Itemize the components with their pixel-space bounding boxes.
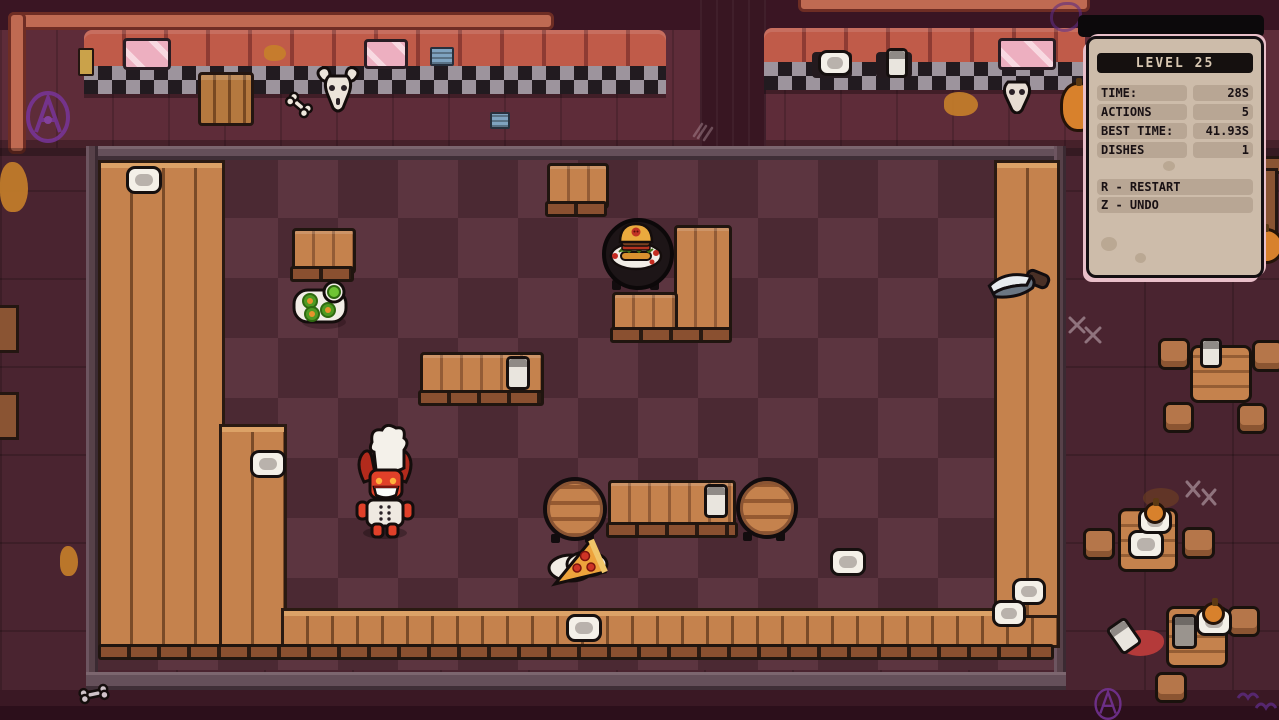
vent-icon bbox=[490, 112, 510, 129]
stat-value-actions: 5 bbox=[1193, 104, 1253, 120]
stat-value-time: 28S bbox=[1193, 85, 1253, 101]
stool bbox=[1158, 338, 1190, 370]
window-icon bbox=[123, 38, 171, 70]
wood-platform-right bbox=[994, 160, 1060, 618]
hud-top-bar bbox=[1078, 15, 1264, 37]
stool bbox=[1083, 528, 1115, 560]
bench bbox=[674, 225, 732, 335]
checker-strip-left bbox=[84, 66, 666, 94]
panel-stain bbox=[1163, 161, 1175, 171]
stool bbox=[1155, 672, 1187, 703]
window-icon bbox=[364, 39, 408, 69]
control-restart: R - RESTART bbox=[1097, 179, 1253, 195]
green-dish-plate-icon bbox=[290, 278, 354, 332]
control-undo: Z - UNDO bbox=[1097, 197, 1253, 213]
plate-icon bbox=[818, 50, 852, 76]
level-header: LEVEL 25 bbox=[1097, 53, 1253, 73]
bull-skull-icon bbox=[316, 66, 360, 114]
skull-icon bbox=[1000, 78, 1034, 114]
stool bbox=[1228, 606, 1260, 637]
stat-label-dishes: DISHES bbox=[1097, 142, 1187, 158]
bench-base bbox=[606, 522, 738, 538]
stat-row-dishes: DISHES 1 bbox=[1097, 142, 1253, 158]
plate-icon bbox=[830, 548, 866, 576]
plate-icon bbox=[250, 450, 286, 478]
stool bbox=[1237, 403, 1267, 434]
game-viewport[interactable]: LEVEL 25 TIME: 28S ACTIONS 5 BEST TIME: … bbox=[0, 0, 1279, 720]
stain bbox=[0, 162, 28, 212]
stool bbox=[1252, 340, 1279, 372]
panel-stain bbox=[1135, 253, 1146, 263]
stool bbox=[1182, 527, 1215, 559]
panel-stain bbox=[1101, 237, 1117, 251]
stat-label-time: TIME: bbox=[1097, 85, 1187, 101]
vent-icon bbox=[430, 47, 454, 66]
bench-base bbox=[418, 390, 544, 406]
plate-icon bbox=[126, 166, 162, 194]
plate-icon bbox=[1128, 530, 1164, 559]
outside-bench-post bbox=[0, 392, 19, 440]
pumpkin-icon bbox=[1144, 502, 1166, 524]
bone-icon bbox=[284, 90, 314, 120]
burger-on-plate-icon bbox=[604, 218, 668, 282]
stat-value-best-time: 41.93S bbox=[1193, 123, 1253, 139]
pipe-top-right bbox=[798, 0, 1090, 12]
room-border-top bbox=[86, 146, 1066, 160]
stat-value-dishes: 1 bbox=[1193, 142, 1253, 158]
wood-bench-row-bottom bbox=[281, 608, 1060, 648]
bench-base bbox=[545, 201, 607, 217]
pipe-top-left-horizontal bbox=[8, 12, 554, 30]
cup-icon bbox=[1172, 614, 1197, 649]
knife-icon bbox=[986, 258, 1052, 308]
bench-base-row bbox=[98, 644, 1054, 660]
barrel-table bbox=[736, 477, 798, 539]
stat-label-actions: ACTIONS bbox=[1097, 104, 1187, 120]
cup-icon bbox=[1200, 338, 1222, 368]
plate-icon bbox=[992, 600, 1026, 627]
control-restart-label: R - RESTART bbox=[1097, 179, 1253, 195]
stool bbox=[1163, 402, 1194, 433]
control-undo-label: Z - UNDO bbox=[1097, 197, 1253, 213]
player-devil-chef bbox=[350, 424, 420, 540]
cup-icon bbox=[886, 48, 908, 78]
scratch-marks bbox=[1066, 310, 1106, 348]
outside-bench-post bbox=[0, 305, 19, 353]
stain bbox=[944, 92, 978, 116]
room-border-left bbox=[86, 146, 98, 686]
window-icon bbox=[998, 38, 1056, 70]
price-tag bbox=[78, 48, 94, 76]
stat-label-best-time: BEST TIME: bbox=[1097, 123, 1187, 139]
stat-row-actions: ACTIONS 5 bbox=[1097, 104, 1253, 120]
bat-marks bbox=[1236, 688, 1278, 714]
scratch-marks bbox=[1183, 476, 1223, 510]
plate-icon bbox=[566, 614, 602, 642]
hud-panel: LEVEL 25 TIME: 28S ACTIONS 5 BEST TIME: … bbox=[1086, 36, 1264, 278]
shaker-icon bbox=[506, 356, 530, 390]
barrel-table bbox=[543, 477, 607, 541]
bench-base bbox=[610, 327, 732, 343]
graffiti-anarchy-icon bbox=[24, 90, 72, 144]
stat-row-time: TIME: 28S bbox=[1097, 85, 1253, 101]
room-border-bottom bbox=[86, 672, 1066, 690]
stain bbox=[264, 45, 286, 61]
wooden-crate bbox=[198, 72, 254, 126]
pizza-slice-icon bbox=[543, 534, 613, 594]
wood-platform-left bbox=[98, 160, 225, 648]
graffiti-anarchy-icon bbox=[1082, 688, 1134, 720]
stain bbox=[60, 546, 78, 576]
stat-row-best-time: BEST TIME: 41.93S bbox=[1097, 123, 1253, 139]
scratch-marks bbox=[690, 118, 724, 144]
bone-icon bbox=[76, 682, 112, 706]
cup-icon bbox=[704, 484, 728, 518]
pumpkin-icon bbox=[1202, 602, 1225, 625]
